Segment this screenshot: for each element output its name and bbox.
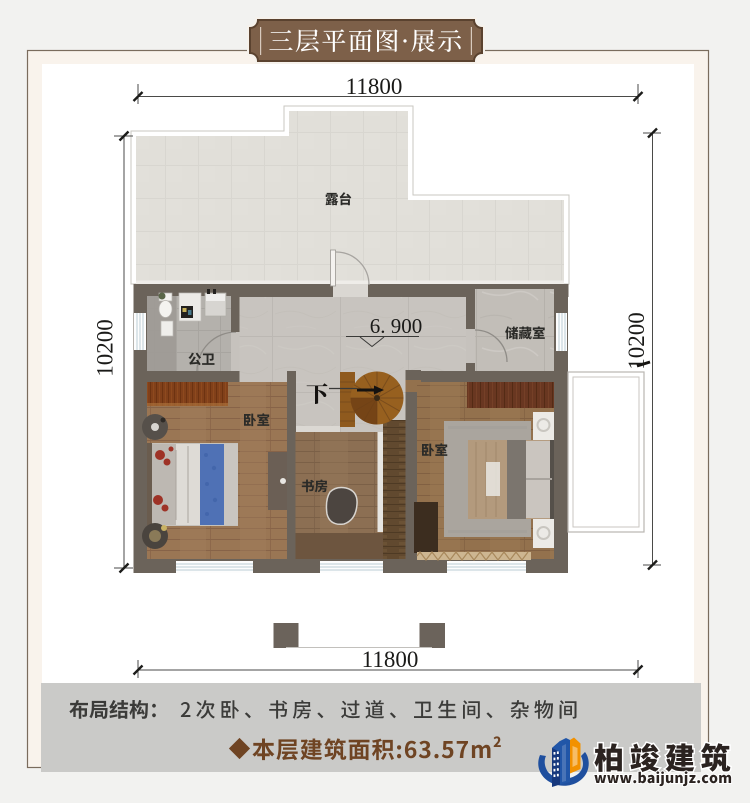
svg-text:10200: 10200 [93,319,118,377]
svg-text:11800: 11800 [346,74,403,99]
svg-text:11800: 11800 [362,647,419,672]
svg-text:10200: 10200 [624,312,649,370]
svg-text:6. 900: 6. 900 [370,314,423,338]
